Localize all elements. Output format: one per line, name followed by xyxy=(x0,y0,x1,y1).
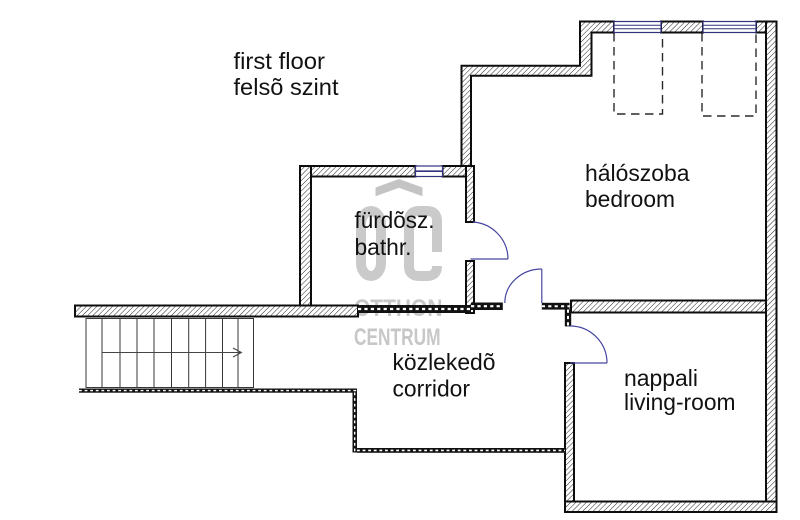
svg-text:bathr.: bathr. xyxy=(355,234,412,260)
svg-text:corridor: corridor xyxy=(393,376,471,402)
svg-text:living-room: living-room xyxy=(624,389,736,415)
svg-text:fürdõsz.: fürdõsz. xyxy=(355,207,435,233)
svg-text:felsõ szint: felsõ szint xyxy=(234,74,340,100)
svg-text:nappali: nappali xyxy=(624,365,698,391)
svg-text:CENTRUM: CENTRUM xyxy=(354,324,441,351)
svg-text:first floor: first floor xyxy=(234,48,326,74)
svg-text:közlekedõ: közlekedõ xyxy=(393,349,496,375)
svg-text:hálószoba: hálószoba xyxy=(585,160,690,186)
svg-text:bedroom: bedroom xyxy=(585,186,675,212)
